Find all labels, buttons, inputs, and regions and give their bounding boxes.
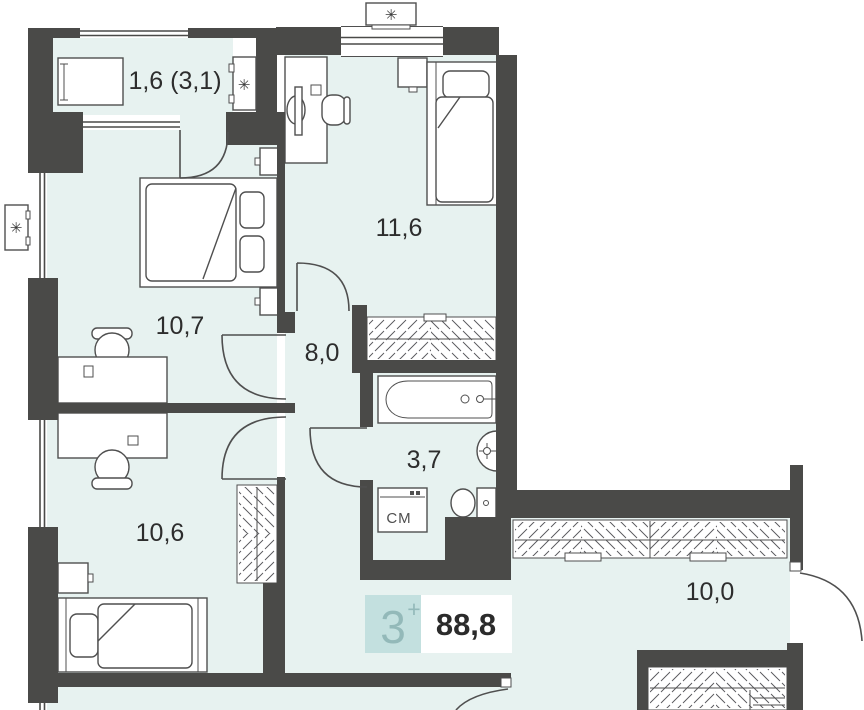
washing-machine-label: СМ <box>386 510 411 527</box>
window-balcony-inner <box>83 115 180 130</box>
closet-entry-top <box>513 520 787 561</box>
badge-rooms-plus: + <box>407 596 420 622</box>
window-left-upper <box>37 173 47 278</box>
closet-bedroom-top <box>367 314 496 361</box>
room-strip-bottom-right-floor <box>511 653 640 710</box>
single-bed-top <box>427 62 498 205</box>
room-label-bedroom-left: 10,7 <box>156 312 205 340</box>
room-strip-bottom-floor <box>47 687 511 710</box>
double-bed <box>140 178 277 287</box>
floor-plan: СМ <box>0 0 864 710</box>
window-left-bottom-cut <box>37 703 47 710</box>
room-label-bedroom-top: 11,6 <box>376 214 423 242</box>
balcony-bench <box>58 58 123 105</box>
window-bedroom-top <box>341 27 443 58</box>
bathtub <box>378 376 497 423</box>
single-bed-bottom <box>58 598 207 672</box>
ac-unit-top: ✳ <box>366 3 416 29</box>
room-label-entry-hall: 10,0 <box>686 578 735 606</box>
nightstand-bedroom-bottom <box>58 563 93 593</box>
nightstand-bedroom-top <box>398 58 427 92</box>
ac-unit-balcony: ✳ <box>229 57 256 110</box>
room-label-bedroom-bottom: 10,6 <box>136 519 185 547</box>
wardrobe-bedroom-bottom <box>237 485 277 583</box>
room-label-balcony: 1,6 (3,1) <box>128 67 221 95</box>
badge-rooms-count: 3 <box>380 601 406 653</box>
room-label-bathroom: 3,7 <box>407 446 442 474</box>
window-left-lower <box>37 420 47 527</box>
room-label-hallway: 8,0 <box>305 339 340 367</box>
ac-unit-left: ✳ <box>5 205 30 250</box>
closet-entry-bottom <box>648 667 787 710</box>
washing-machine: СМ <box>378 488 427 532</box>
window-balcony-top <box>80 28 188 38</box>
summary-badge: 3 + 88,8 <box>365 595 512 653</box>
ac-unit-left-icon: ✳ <box>10 219 23 237</box>
ac-unit-top-icon: ✳ <box>385 6 398 24</box>
badge-total-area: 88,8 <box>436 607 496 642</box>
floor-plan-svg: СМ <box>0 0 864 710</box>
ac-unit-balcony-icon: ✳ <box>238 76 251 94</box>
